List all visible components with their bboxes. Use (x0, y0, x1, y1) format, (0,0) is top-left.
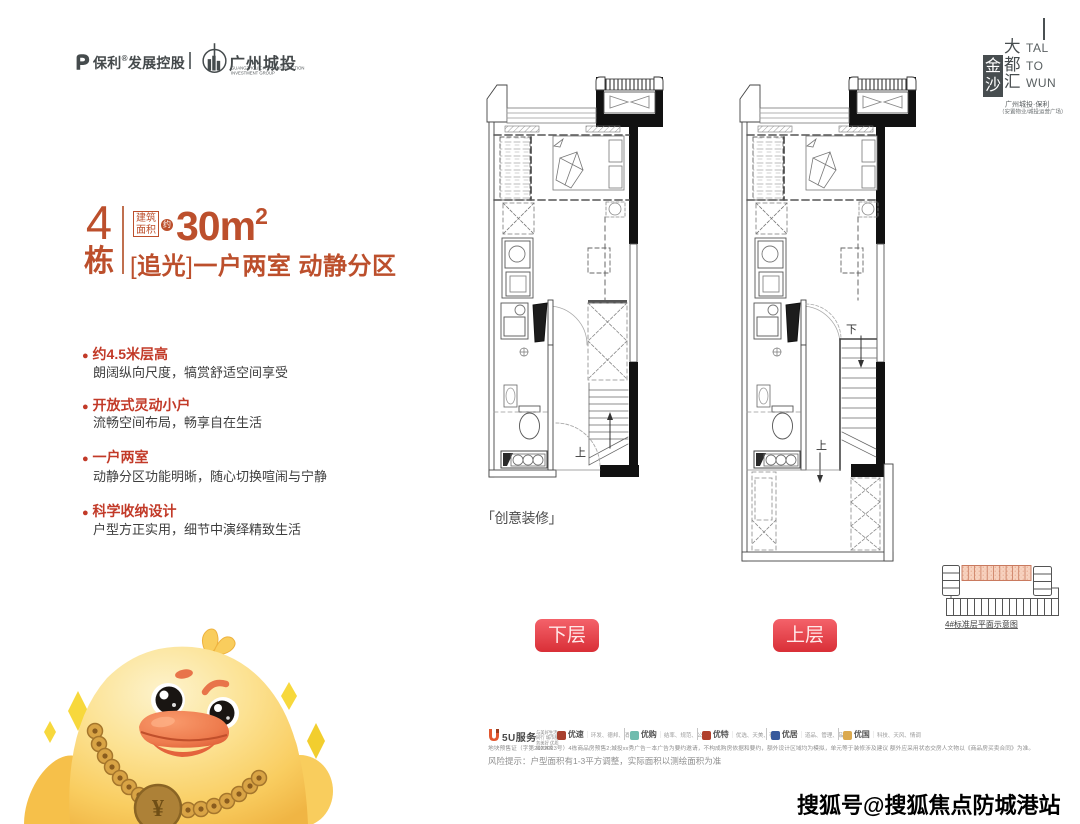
svg-text:上: 上 (816, 439, 827, 452)
svg-text:下: 下 (846, 324, 857, 336)
svg-text:4#标准层平面示意图: 4#标准层平面示意图 (945, 619, 1018, 629)
svg-text:上: 上 (575, 446, 586, 459)
svg-text:¥: ¥ (152, 796, 164, 822)
